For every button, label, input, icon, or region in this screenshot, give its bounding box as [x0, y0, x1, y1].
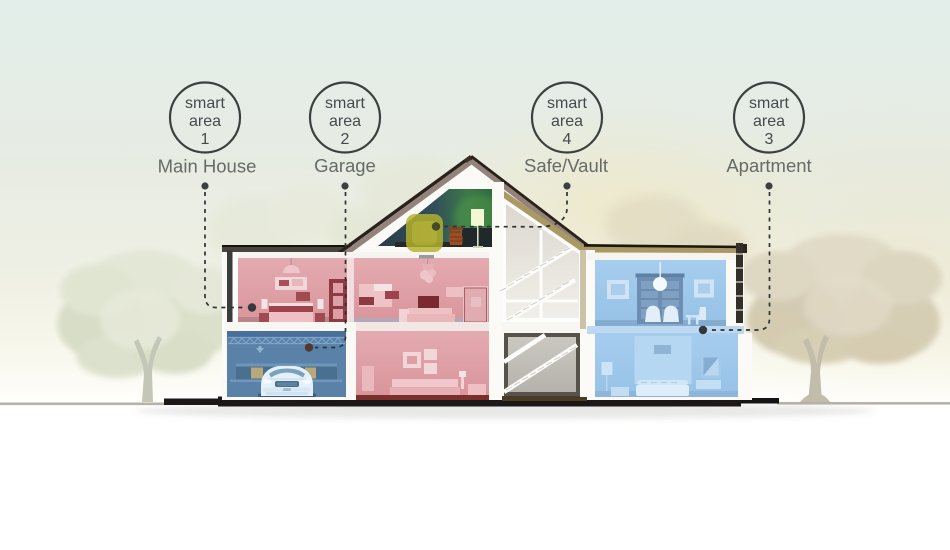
- svg-text:Garage: Garage: [314, 155, 376, 176]
- svg-text:Safe/Vault: Safe/Vault: [524, 155, 608, 176]
- svg-text:smart: smart: [749, 95, 790, 112]
- svg-text:smart: smart: [325, 95, 366, 112]
- svg-text:area: area: [551, 113, 583, 130]
- svg-text:area: area: [753, 113, 785, 130]
- svg-text:4: 4: [563, 131, 572, 148]
- svg-text:smart: smart: [547, 95, 588, 112]
- svg-text:3: 3: [765, 131, 774, 148]
- svg-text:Main House: Main House: [158, 156, 257, 177]
- svg-text:area: area: [329, 113, 361, 130]
- svg-text:1: 1: [201, 131, 210, 148]
- svg-text:area: area: [189, 113, 221, 130]
- svg-text:smart: smart: [185, 95, 226, 112]
- svg-text:Apartment: Apartment: [726, 155, 811, 176]
- svg-text:2: 2: [341, 131, 350, 148]
